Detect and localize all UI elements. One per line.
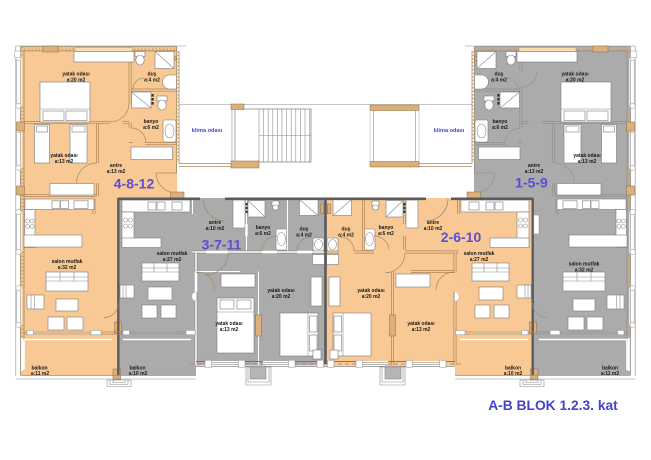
svg-text:a:6 m2: a:6 m2 bbox=[492, 125, 508, 131]
svg-text:3-7-11: 3-7-11 bbox=[202, 237, 242, 253]
svg-text:a:13 m2: a:13 m2 bbox=[412, 327, 431, 333]
svg-text:a:11 m2: a:11 m2 bbox=[31, 371, 50, 377]
svg-text:a:20 m2: a:20 m2 bbox=[272, 294, 291, 300]
svg-text:A-B BLOK 1.2.3. kat: A-B BLOK 1.2.3. kat bbox=[488, 398, 618, 413]
svg-text:a:13 m2: a:13 m2 bbox=[220, 327, 239, 333]
svg-text:a:27 m2: a:27 m2 bbox=[470, 257, 489, 263]
svg-text:a:13 m2: a:13 m2 bbox=[578, 159, 597, 165]
svg-text:a:10 m2: a:10 m2 bbox=[206, 226, 225, 232]
svg-text:a:6 m2: a:6 m2 bbox=[378, 231, 394, 237]
svg-text:a:20 m2: a:20 m2 bbox=[362, 294, 381, 300]
svg-text:a:10 m2: a:10 m2 bbox=[504, 371, 523, 377]
svg-text:1-5-9: 1-5-9 bbox=[515, 175, 548, 191]
svg-text:a:4 m2: a:4 m2 bbox=[144, 77, 160, 83]
svg-text:2-6-10: 2-6-10 bbox=[441, 229, 482, 245]
svg-text:a:13 m2: a:13 m2 bbox=[107, 169, 126, 175]
svg-text:a:32 m2: a:32 m2 bbox=[58, 265, 77, 271]
svg-text:klima odası: klima odası bbox=[192, 128, 223, 134]
svg-text:a:11 m2: a:11 m2 bbox=[601, 371, 620, 377]
svg-text:klima odası: klima odası bbox=[434, 128, 465, 134]
svg-text:a:6 m2: a:6 m2 bbox=[143, 125, 159, 131]
svg-text:a:4 m2: a:4 m2 bbox=[491, 77, 507, 83]
svg-text:a:6 m2: a:6 m2 bbox=[255, 231, 271, 237]
svg-text:a:10 m2: a:10 m2 bbox=[129, 371, 148, 377]
svg-text:a:27 m2: a:27 m2 bbox=[163, 257, 182, 263]
svg-text:4-8-12: 4-8-12 bbox=[114, 176, 155, 192]
svg-text:a:13 m2: a:13 m2 bbox=[55, 159, 74, 165]
svg-text:a:4 m2: a:4 m2 bbox=[338, 232, 354, 238]
svg-text:a:4 m2: a:4 m2 bbox=[296, 232, 312, 238]
svg-text:a:20 m2: a:20 m2 bbox=[566, 77, 585, 83]
svg-text:a:20 m2: a:20 m2 bbox=[67, 77, 86, 83]
svg-text:a:10 m2: a:10 m2 bbox=[424, 226, 443, 232]
svg-text:a:32 m2: a:32 m2 bbox=[575, 268, 594, 274]
